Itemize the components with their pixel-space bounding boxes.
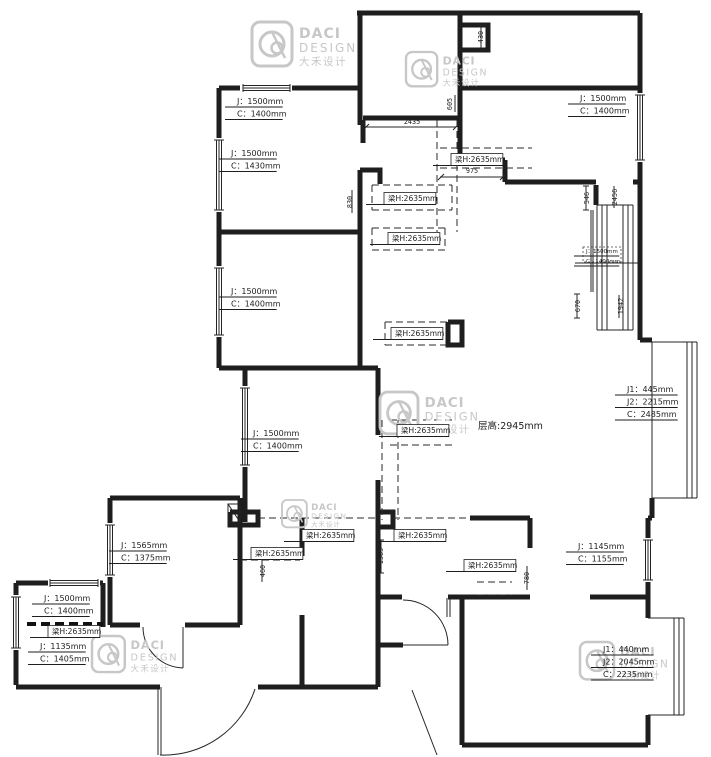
beam-label: 梁H:2635mm <box>455 155 504 164</box>
dimension-label: 430 <box>477 31 485 43</box>
watermark: DACIDESIGN大禾设计 <box>92 636 178 674</box>
dimension-label: 670 <box>574 300 582 312</box>
window-label: C：1400mm <box>253 442 303 451</box>
dimension-label: 830 <box>346 196 354 208</box>
window-label: C：1400mm <box>586 259 620 265</box>
watermark-cn: 大禾设计 <box>131 662 170 674</box>
window-label: C：1400mm <box>44 607 94 616</box>
watermark-cn: 大禾设计 <box>299 55 347 68</box>
dimension-label: 975 <box>466 167 478 175</box>
beam-label: 梁H:2635mm <box>401 426 450 435</box>
beam-label: 梁H:2635mm <box>392 234 441 243</box>
dimension-label: 460 <box>259 565 267 577</box>
window-label: J：1500mm <box>579 94 627 103</box>
watermark: DACIDESIGN大禾设计 <box>282 500 347 529</box>
beam-label: 梁H:2635mm <box>255 549 304 558</box>
dimensions-layer: 2435975430605830546245667019421385460780 <box>259 31 625 584</box>
dimension-label: 780 <box>523 572 531 584</box>
beam-lines <box>240 120 532 595</box>
window-label: C：1400mm <box>237 110 287 119</box>
window-label: C：1400mm <box>580 107 630 116</box>
watermark: DACIDESIGN大禾设计 <box>406 52 488 88</box>
window-label: J1：440mm <box>602 645 650 654</box>
window-label: J1：445mm <box>626 385 674 394</box>
window-label: J：1500mm <box>230 287 278 296</box>
watermark-cn: 大禾设计 <box>443 78 480 88</box>
leader-diagonal <box>412 690 437 755</box>
dimension-label: 546 <box>583 192 591 204</box>
window-label: C：2235mm <box>603 670 653 679</box>
sliding-window-corridor <box>591 205 633 330</box>
floor-plan-canvas: DACIDESIGN大禾设计DACIDESIGN大禾设计DACIDESIGN大禾… <box>0 0 711 757</box>
beam-label: 梁H:2635mm <box>52 627 101 636</box>
window-label: J：1500mm <box>252 429 300 438</box>
dimension-label: 605 <box>446 98 454 110</box>
watermark-brand: DACI <box>443 54 476 67</box>
window-label: J：1500mm <box>43 594 91 603</box>
watermark-sub: DESIGN <box>443 67 488 78</box>
beam-label: 梁H:2635mm <box>306 531 355 540</box>
window-porch-top <box>50 579 98 587</box>
window-label: J：1500mm <box>230 149 278 158</box>
window-label: J：1565mm <box>120 541 168 550</box>
window-label: C：1405mm <box>40 655 90 664</box>
window-label: J：1145mm <box>577 542 625 551</box>
watermark-brand: DACI <box>299 26 341 42</box>
beam-label: 梁H:2635mm <box>468 561 517 570</box>
dimension-label: 1942 <box>617 298 625 314</box>
watermark-sub: DESIGN <box>425 410 480 424</box>
watermark-sub: DESIGN <box>311 512 347 521</box>
window-label: J2：2045mm <box>602 658 655 667</box>
door-entry <box>158 687 255 755</box>
watermark-sub: DESIGN <box>131 653 179 664</box>
dimension-label: 1385 <box>377 548 385 564</box>
window-top-left-room-top <box>243 84 290 92</box>
window-label: J：1135mm <box>39 642 87 651</box>
dimension-label: 2435 <box>404 118 420 126</box>
window-label: J2：2215mm <box>626 398 679 407</box>
watermark-cn: 大禾设计 <box>311 520 341 529</box>
window-label: C：1430mm <box>231 162 281 171</box>
watermark-brand: DACI <box>131 638 165 652</box>
beam-label: 梁H:2635mm <box>398 531 447 540</box>
beam-label: 梁H:2635mm <box>388 194 437 203</box>
windows-layer <box>11 84 697 715</box>
beams-layer <box>27 120 621 624</box>
watermark: DACIDESIGN大禾设计 <box>252 22 357 68</box>
window-label: C：1375mm <box>121 554 171 563</box>
door-corridor <box>403 598 450 645</box>
dimension-label: 2456 <box>611 189 619 205</box>
floor-plan-page: DACIDESIGN大禾设计DACIDESIGN大禾设计DACIDESIGN大禾… <box>0 0 711 757</box>
window-label: C：1400mm <box>231 300 281 309</box>
window-label: J：1500mm <box>236 97 284 106</box>
ceiling-height-label: 层高:2945mm <box>478 420 543 432</box>
beam-label: 梁H:2635mm <box>395 329 444 338</box>
window-label: C：1155mm <box>578 555 628 564</box>
window-label: C：2485mm <box>627 410 677 419</box>
watermark-sub: DESIGN <box>299 41 357 55</box>
doors-layer <box>143 598 450 755</box>
watermark-layer: DACIDESIGN大禾设计DACIDESIGN大禾设计DACIDESIGN大禾… <box>92 22 669 682</box>
window-label: J：1500mm <box>585 249 618 255</box>
